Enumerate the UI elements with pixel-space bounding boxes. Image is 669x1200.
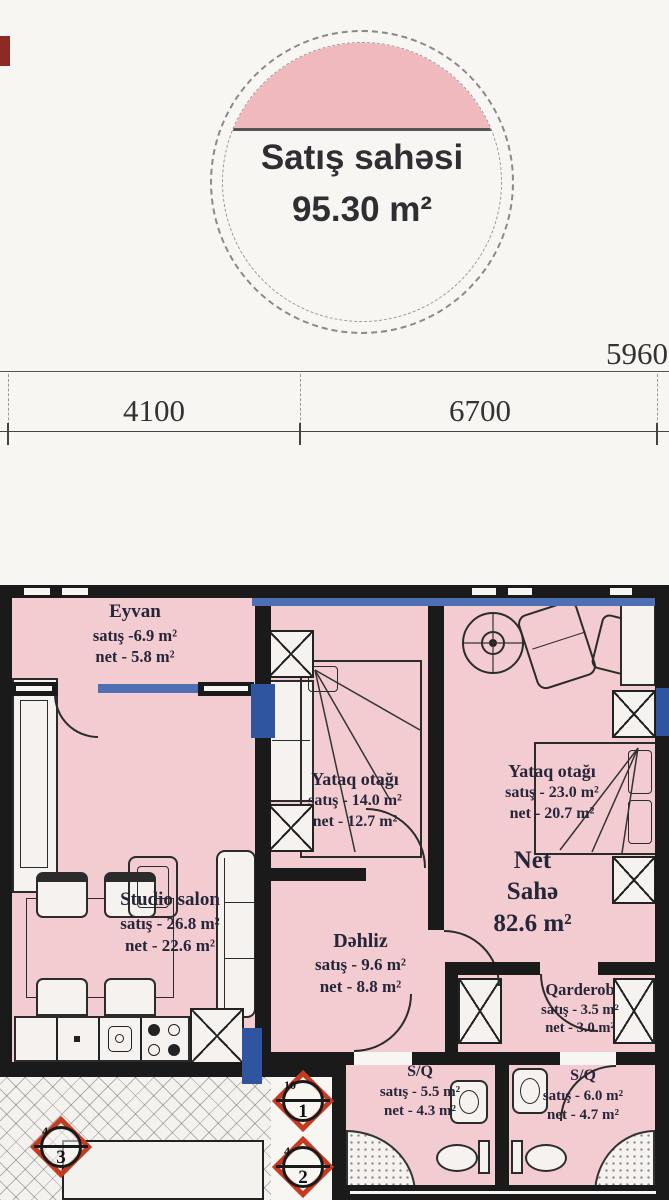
room-name: Studio salon [60,888,280,913]
wall-qarderob-top-left [445,962,540,975]
room-label-bedroom2: Yataq otağı satış - 23.0 m² net - 20.7 m… [462,760,642,825]
room-name: S/Q [345,1062,495,1083]
room-label-qarderob: Qarderob satış - 3.5 m² net - 3.0 m² [505,980,655,1037]
marker-number: 2 [272,1167,334,1189]
wall-sq1-left [332,1062,346,1200]
room-label-sq1: S/Q satış - 5.5 m² net - 4.3 m² [345,1062,495,1122]
net-area-line1: Net [440,845,625,876]
wall-top [0,585,669,598]
room-label-sq2: S/Q satış - 6.0 m² net - 4.7 m² [508,1066,658,1126]
wall-lintel-mark [350,1191,656,1194]
wall-sq-divider [495,1052,509,1200]
wall-lintel-mark [610,588,632,595]
room-satis: satış - 6.0 m² [508,1087,658,1107]
marker-number: 3 [30,1147,92,1169]
wall-left [0,585,12,1077]
window-right-wall [656,688,669,736]
room-satis: satış - 5.5 m² [345,1083,495,1103]
room-net: net - 5.8 m² [30,646,240,667]
room-net: net - 22.6 m² [60,935,280,957]
net-area-line2: Sahə [440,876,625,907]
net-area-summary: Net Sahə 82.6 m² [440,845,625,939]
room-satis: satış - 23.0 m² [462,783,642,804]
room-name: Yataq otağı [462,760,642,783]
room-net: net - 4.7 m² [508,1106,658,1126]
marker-sub-label: 4 [42,1124,48,1139]
window-eyvan-rail [98,684,198,693]
room-net: net - 8.8 m² [278,976,443,998]
wall-lintel-mark [62,588,88,595]
window-divider-block [251,684,275,738]
room-net: net - 3.0 m² [505,1019,655,1037]
section-marker-2: 4 2 [272,1136,334,1198]
room-name: Yataq otağı [280,768,430,791]
room-name: Eyvan [30,600,240,625]
room-label-dehliz: Dəhliz satış - 9.6 m² net - 8.8 m² [278,928,443,998]
net-area-value: 82.6 m² [440,908,625,939]
room-satis: satış - 26.8 m² [60,913,280,935]
marker-number: 1 [272,1101,334,1123]
room-label-bedroom1: Yataq otağı satış - 14.0 m² net - 12.7 m… [280,768,430,833]
room-name: Dəhliz [278,928,443,954]
room-net: net - 4.3 m² [345,1102,495,1122]
room-satis: satış -6.9 m² [30,625,240,646]
room-name: S/Q [508,1066,658,1087]
room-net: net - 12.7 m² [280,812,430,833]
room-satis: satış - 9.6 m² [278,954,443,976]
wall-dehliz-bottom-c [616,1052,657,1065]
marker-sub-label: 4 [284,1144,290,1159]
wall-lintel-mark [472,588,496,595]
section-marker-3: 4 3 [30,1116,92,1178]
marker-sub-label: 10 [284,1078,296,1093]
room-net: net - 20.7 m² [462,804,642,825]
window-strip-top [252,598,655,606]
wall-qarderob-left [445,962,458,1065]
floor-plan-scan: Satış sahəsi 95.30 m² 5960 4100 6700 [0,0,669,1200]
wall-bedroom1-bottom [262,868,366,881]
wall-qarderob-top-right [598,962,657,975]
section-marker-1: 10 1 [272,1070,334,1132]
wall-lintel-mark [204,686,248,691]
room-satis: satış - 3.5 m² [505,1001,655,1019]
wall-lintel-mark [24,588,50,595]
wall-lintel-mark [16,686,52,691]
room-name: Qarderob [505,980,655,1001]
wall-salon-bedroom-divider [255,585,271,1062]
room-label-eyvan: Eyvan satış -6.9 m² net - 5.8 m² [30,600,240,668]
room-satis: satış - 14.0 m² [280,791,430,812]
wall-lintel-mark [508,588,532,595]
door-frame-blue [242,1028,262,1084]
room-label-studio-salon: Studio salon satış - 26.8 m² net - 22.6 … [60,888,280,957]
